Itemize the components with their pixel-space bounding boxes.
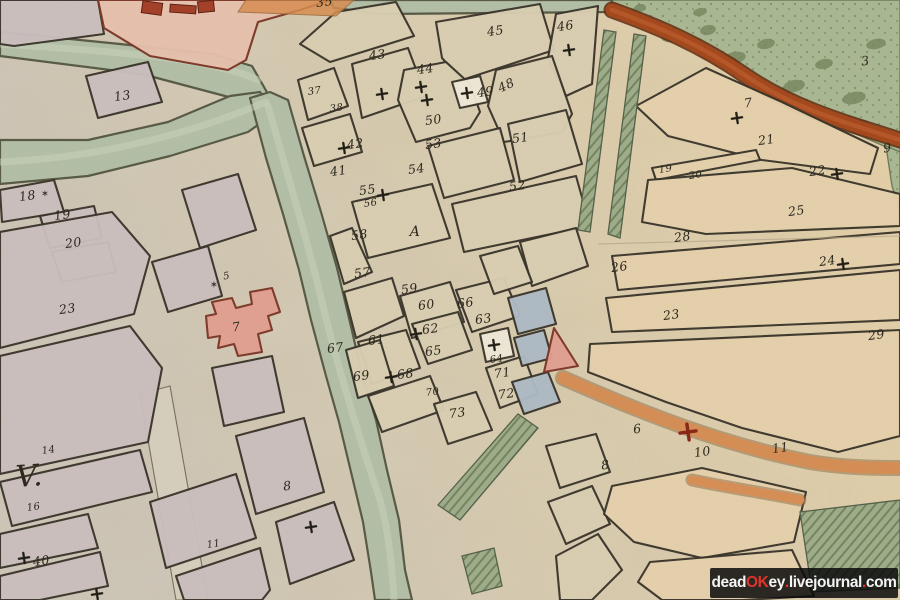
watermark-segment: com (866, 574, 897, 592)
watermark-segment: ey (768, 574, 784, 592)
paper-grain (0, 0, 900, 600)
historic-city-map: 131819202357V.14164081135434546444948505… (0, 0, 900, 600)
watermark-segment: OK (746, 574, 768, 592)
watermark-segment: dead (711, 574, 746, 592)
screenshot-stage: 131819202357V.14164081135434546444948505… (0, 0, 900, 600)
watermark: deadOKey.livejournal.com (710, 568, 898, 598)
watermark-segment: livejournal (789, 574, 862, 592)
